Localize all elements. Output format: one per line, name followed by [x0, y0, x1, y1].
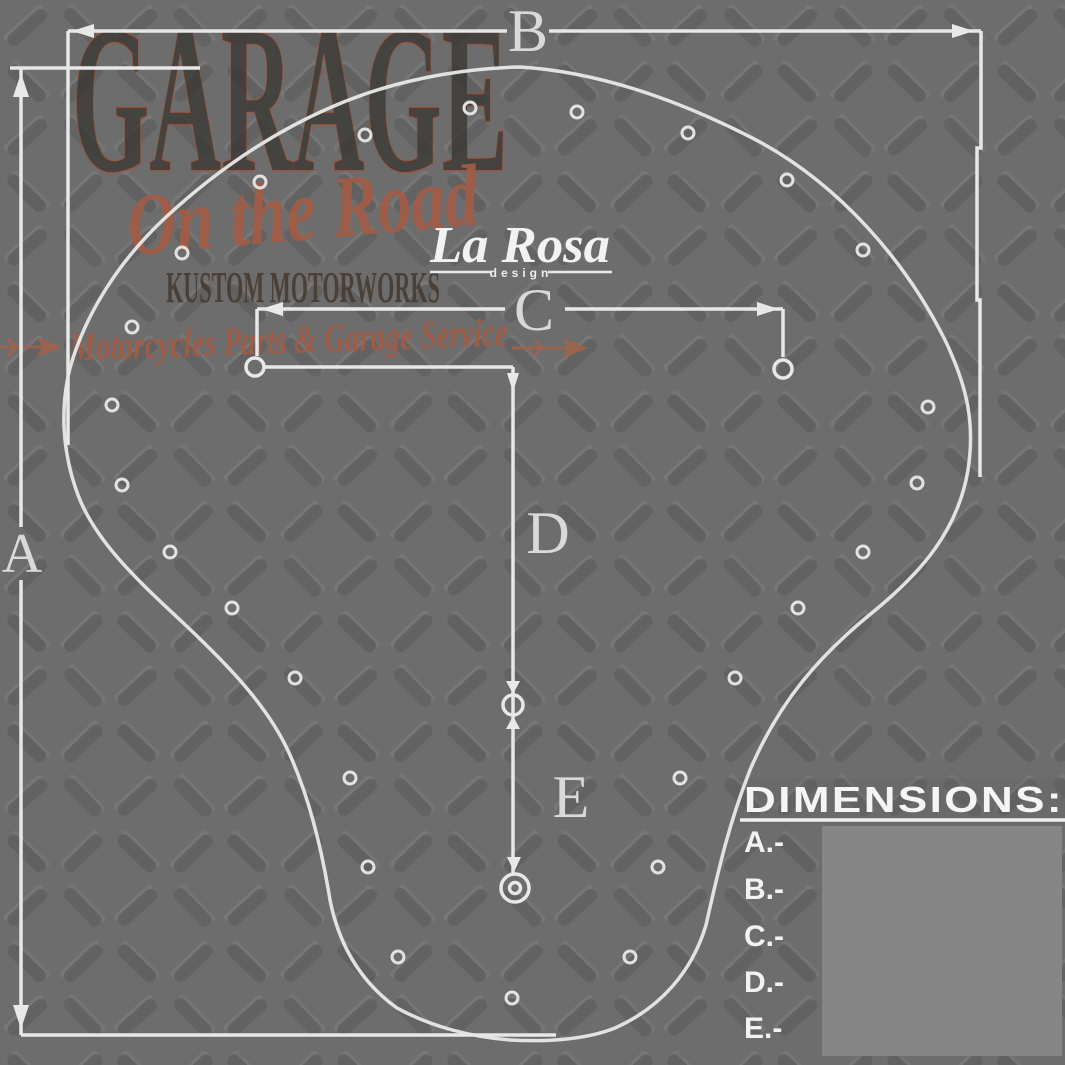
- dimension-label-c: C: [514, 277, 554, 343]
- seat-template-diagram: GARAGE On the Road KUSTOM MOTORWORKS Mot…: [0, 0, 1065, 1065]
- diagram-canvas: GARAGE On the Road KUSTOM MOTORWORKS Mot…: [0, 0, 1065, 1065]
- legend-item: A.-: [744, 826, 784, 859]
- brand-sub-text: design: [490, 266, 553, 280]
- dimension-label-a: A: [2, 523, 43, 585]
- legend-panel: [822, 826, 1062, 1056]
- watermark-kustom-motorworks-text: KUSTOM MOTORWORKS: [166, 263, 440, 312]
- brand-la-rosa: La Rosa design: [429, 217, 612, 280]
- dimension-label-b: B: [508, 0, 548, 64]
- legend-title: DIMENSIONS:: [744, 779, 1064, 820]
- legend-item: D.-: [744, 966, 784, 999]
- legend-item: E.-: [744, 1012, 782, 1045]
- legend-item: B.-: [744, 873, 784, 906]
- dimension-label-e: E: [553, 764, 590, 830]
- legend-item: C.-: [744, 920, 784, 953]
- dimension-label-d: D: [526, 500, 569, 566]
